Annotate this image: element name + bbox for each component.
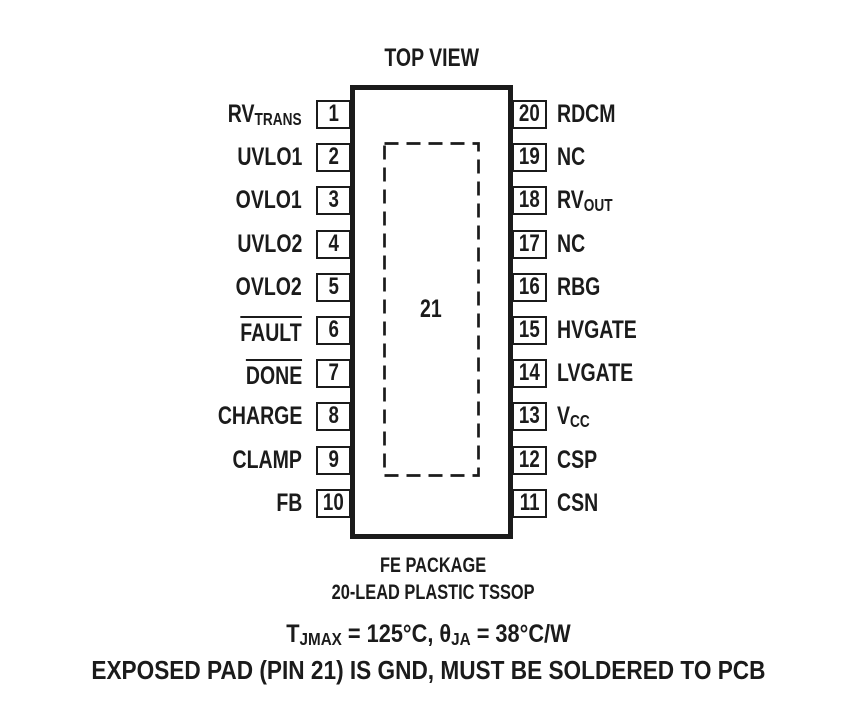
- package-name-line1: FE PACKAGE: [233, 552, 633, 579]
- pin-box-13: 13: [512, 402, 547, 431]
- top-view-label: TOP VIEW: [350, 46, 513, 71]
- package-name: FE PACKAGE 20-LEAD PLASTIC TSSOP: [233, 552, 633, 606]
- pin-label-15: HVGATE: [557, 316, 857, 345]
- pin-label-1: RVTRANS: [0, 100, 302, 129]
- pin-label-13: VCC: [557, 402, 857, 431]
- pin-box-15: 15: [512, 316, 547, 345]
- pin-box-9: 9: [316, 446, 351, 475]
- pin-box-10: 10: [316, 489, 351, 518]
- package-name-line2: 20-LEAD PLASTIC TSSOP: [233, 579, 633, 606]
- pin-label-11: CSN: [557, 489, 857, 518]
- pin-box-6: 6: [316, 316, 351, 345]
- pin-box-1: 1: [316, 100, 351, 129]
- pin-box-14: 14: [512, 359, 547, 388]
- pin-label-19: NC: [557, 143, 857, 172]
- exposed-pad-number: 21: [383, 295, 478, 324]
- pin-box-18: 18: [512, 186, 547, 215]
- thermal-note: TJMAX = 125°C, θJA = 38°C/W: [0, 619, 857, 649]
- pin-label-14: LVGATE: [557, 359, 857, 388]
- pin-box-12: 12: [512, 446, 547, 475]
- pin-label-2: UVLO1: [0, 143, 302, 172]
- theta-symbol: θ: [439, 620, 451, 648]
- pin-label-10: FB: [0, 489, 302, 518]
- pin-label-5: OVLO2: [0, 273, 302, 302]
- pin-box-17: 17: [512, 230, 547, 259]
- pin-label-7: DONE: [0, 359, 302, 388]
- pin-label-17: NC: [557, 230, 857, 259]
- pin-box-5: 5: [316, 273, 351, 302]
- pin-box-16: 16: [512, 273, 547, 302]
- pin-label-20: RDCM: [557, 100, 857, 129]
- top-view-text: TOP VIEW: [384, 46, 479, 71]
- pin-label-12: CSP: [557, 446, 857, 475]
- pin-box-20: 20: [512, 100, 547, 129]
- pin-label-3: OVLO1: [0, 186, 302, 215]
- pin-box-2: 2: [316, 143, 351, 172]
- exposed-pad-note: EXPOSED PAD (PIN 21) IS GND, MUST BE SOL…: [0, 655, 857, 685]
- pin-box-8: 8: [316, 402, 351, 431]
- pin-box-3: 3: [316, 186, 351, 215]
- pin-box-4: 4: [316, 230, 351, 259]
- pin-label-9: CLAMP: [0, 446, 302, 475]
- pin-label-6: FAULT: [0, 316, 302, 345]
- pin-box-11: 11: [512, 489, 547, 518]
- pin-label-16: RBG: [557, 273, 857, 302]
- pinout-diagram: TOP VIEW 21 RVTRANS UVLO1 OVLO1 UVLO2 OV…: [0, 0, 857, 722]
- pin-label-4: UVLO2: [0, 230, 302, 259]
- pin-box-19: 19: [512, 143, 547, 172]
- pin-label-8: CHARGE: [0, 402, 302, 431]
- pin-label-18: RVOUT: [557, 186, 857, 215]
- pin-box-7: 7: [316, 359, 351, 388]
